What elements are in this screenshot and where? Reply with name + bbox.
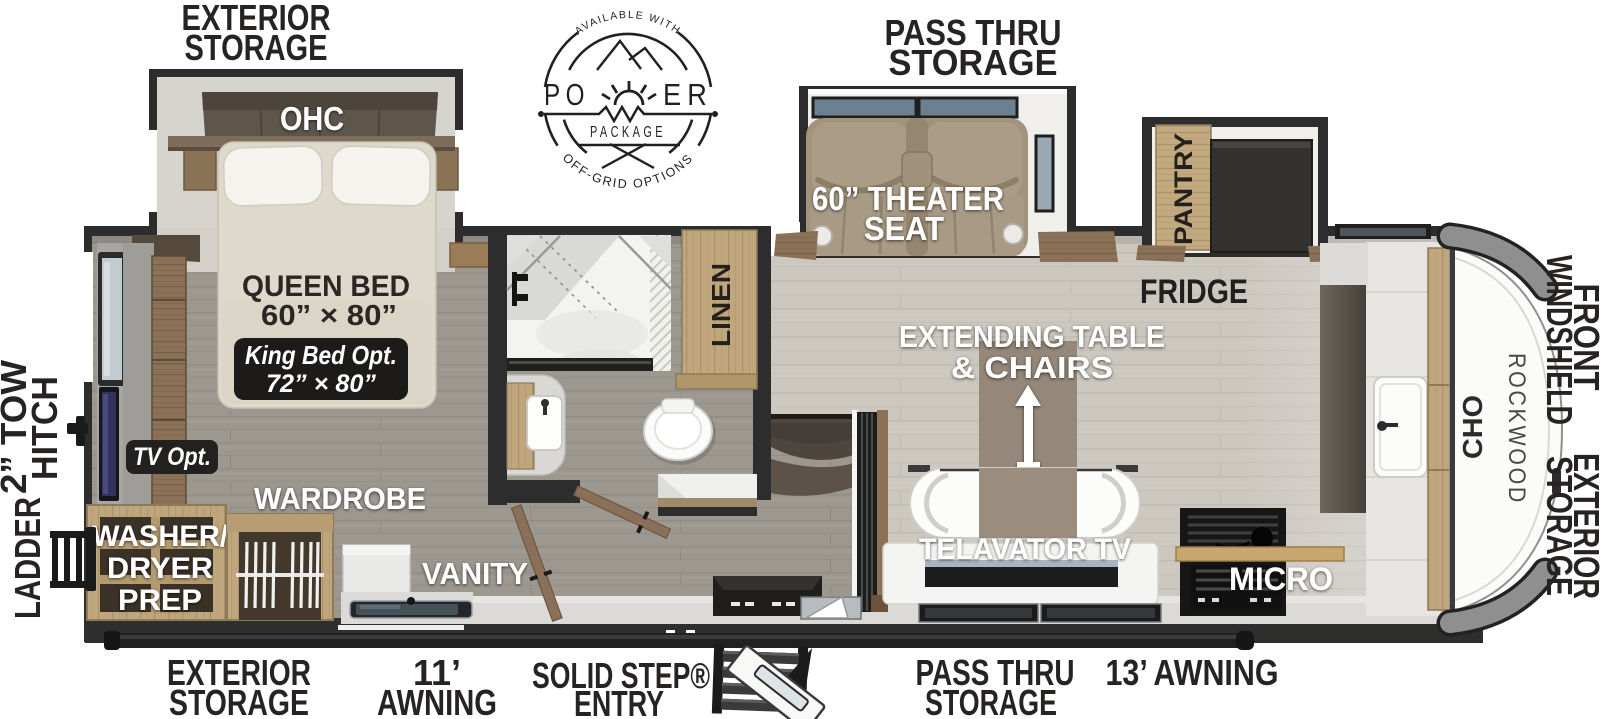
svg-text:ROCKWOOD: ROCKWOOD	[1503, 353, 1530, 505]
svg-text:CHO: CHO	[1457, 395, 1488, 459]
svg-text:60” × 80”: 60” × 80”	[261, 300, 397, 332]
svg-text:72” × 80”: 72” × 80”	[266, 370, 377, 398]
svg-text:& CHAIRS: & CHAIRS	[951, 350, 1113, 385]
svg-text:TELAVATOR TV: TELAVATOR TV	[919, 533, 1131, 566]
svg-text:King Bed Opt.: King Bed Opt.	[245, 340, 397, 370]
svg-text:QUEEN BED: QUEEN BED	[242, 270, 410, 303]
svg-text:PANTRY: PANTRY	[1170, 133, 1198, 245]
svg-text:MICRO: MICRO	[1229, 561, 1333, 597]
svg-text:TV Opt.: TV Opt.	[133, 443, 211, 471]
svg-text:PACKAGE: PACKAGE	[590, 124, 666, 141]
svg-text:PO: PO	[544, 77, 590, 112]
svg-text:OHC: OHC	[280, 100, 344, 137]
svg-text:13’ AWNING: 13’ AWNING	[1106, 652, 1279, 693]
svg-text:STORAGE: STORAGE	[925, 682, 1057, 719]
svg-text:LINEN: LINEN	[706, 263, 736, 347]
svg-text:ENTRY: ENTRY	[574, 683, 664, 719]
svg-text:STORAGE: STORAGE	[185, 27, 328, 68]
svg-text:DRYER: DRYER	[107, 552, 213, 585]
svg-text:SEAT: SEAT	[864, 210, 944, 247]
svg-text:ER: ER	[663, 77, 713, 112]
svg-text:LADDER: LADDER	[7, 497, 48, 619]
svg-text:WINDSHIELD: WINDSHIELD	[1539, 255, 1580, 425]
svg-text:EXTENDING TABLE: EXTENDING TABLE	[899, 319, 1165, 354]
svg-text:WARDROBE: WARDROBE	[254, 481, 426, 516]
svg-text:AWNING: AWNING	[377, 682, 497, 719]
svg-text:STORAGE: STORAGE	[1539, 456, 1580, 596]
svg-text:STORAGE: STORAGE	[169, 682, 309, 719]
svg-text:HITCH: HITCH	[24, 376, 65, 480]
svg-text:PREP: PREP	[118, 584, 202, 617]
svg-text:VANITY: VANITY	[422, 556, 528, 591]
svg-text:STORAGE: STORAGE	[889, 42, 1058, 83]
svg-text:WASHER/: WASHER/	[92, 520, 229, 553]
svg-text:FRIDGE: FRIDGE	[1140, 273, 1248, 311]
